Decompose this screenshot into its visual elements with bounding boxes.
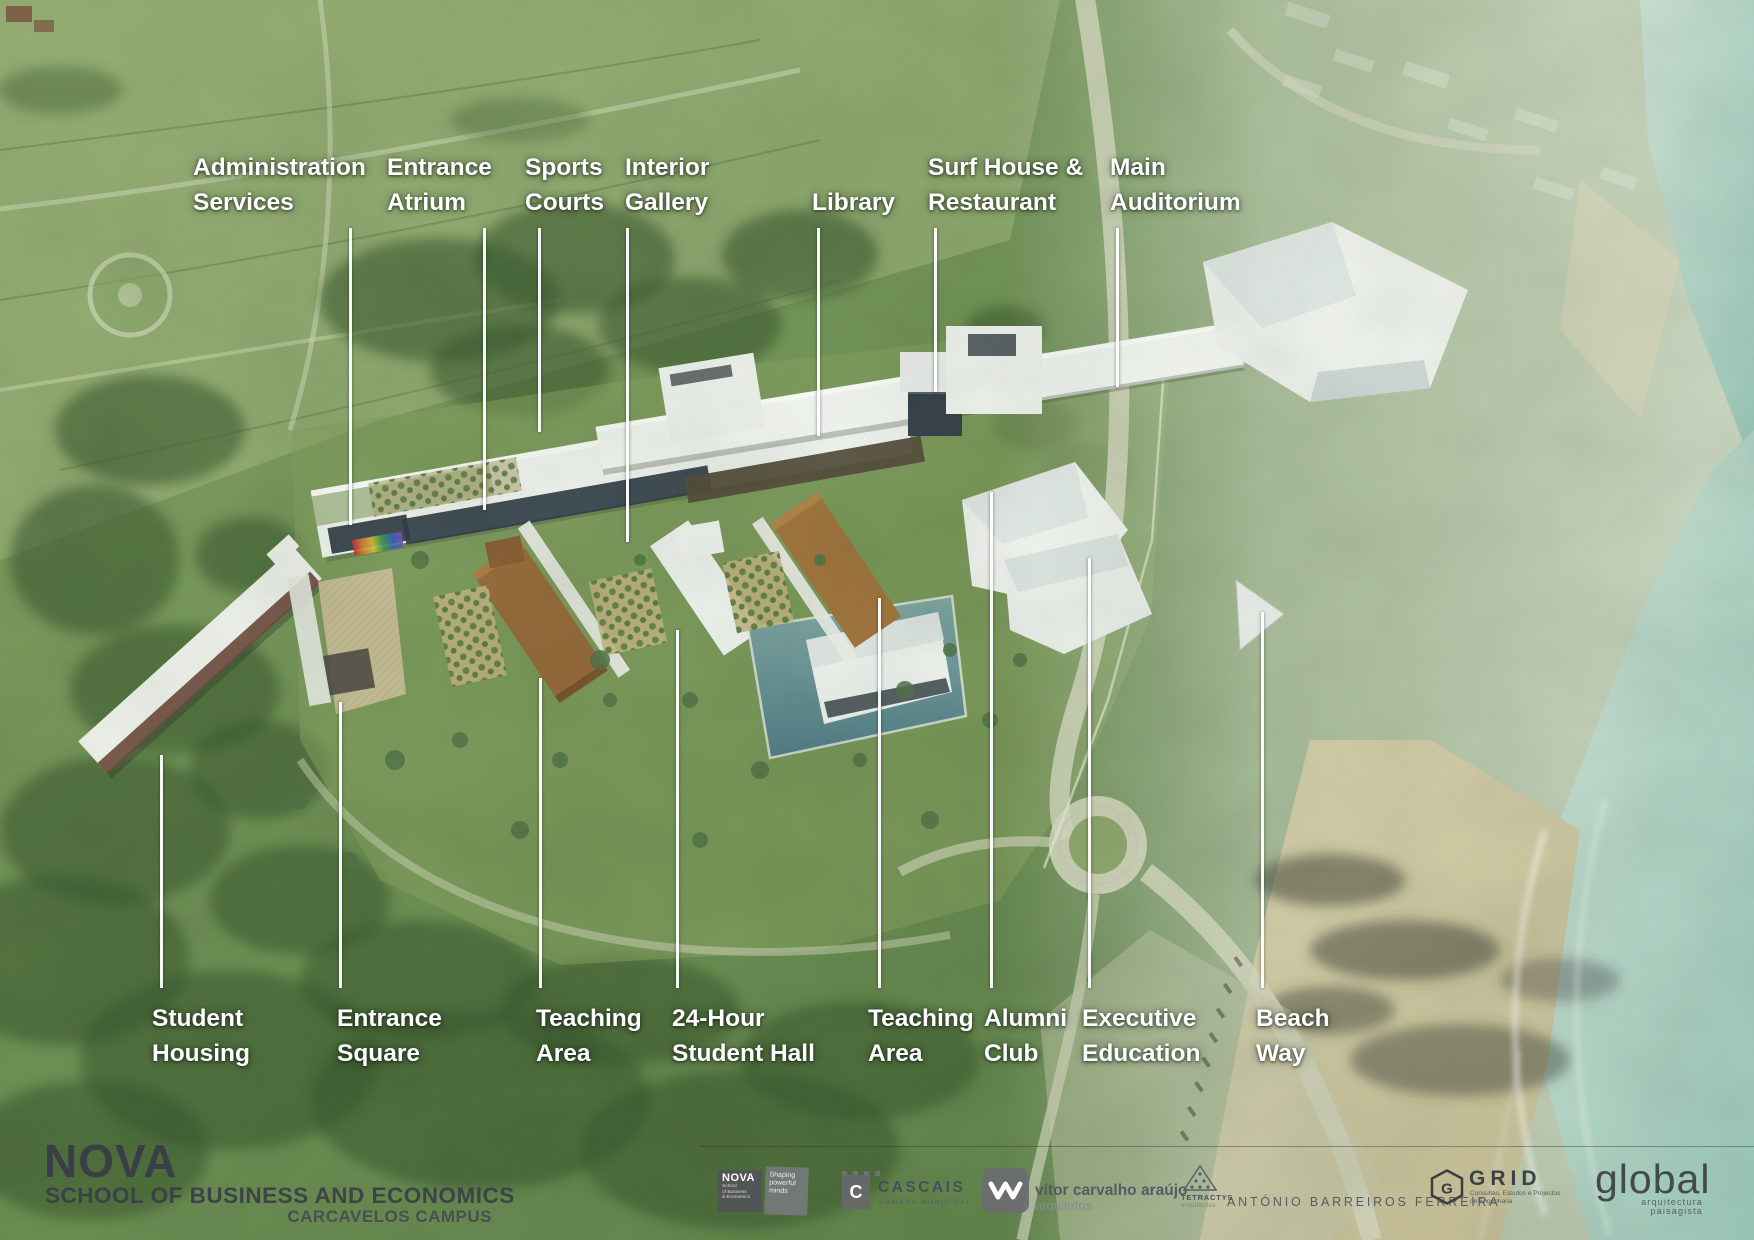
callout-student-hall: 24-Hour Student Hall — [672, 1001, 815, 1071]
leader-line-interior-gallery — [626, 228, 629, 542]
leader-line-main-auditorium — [1116, 228, 1119, 387]
global-logo-name: global — [1595, 1159, 1710, 1200]
leader-line-sports-courts — [538, 228, 541, 432]
callout-label-line: Interior — [625, 150, 709, 185]
callout-label-line: Way — [1256, 1036, 1330, 1071]
callout-teaching-area-east: Teaching Area — [868, 1001, 974, 1071]
grid-logo-sub: Consultas, Estudos e Projectos de Engenh… — [1470, 1190, 1560, 1205]
callout-library: Library — [812, 185, 895, 220]
grid-logo-name: GRID — [1469, 1168, 1542, 1189]
callout-label-line: Alumni — [984, 1001, 1067, 1036]
callout-label-line: Auditorium — [1110, 185, 1241, 220]
leader-line-executive-education — [1088, 558, 1091, 988]
tetractys-logo-sub: arquitectos — [1181, 1203, 1216, 1209]
callout-label-line: Executive — [1082, 1001, 1200, 1036]
callout-label-line: Teaching — [536, 1001, 642, 1036]
callout-label-line: Gallery — [625, 185, 709, 220]
leader-line-student-hall — [676, 630, 679, 988]
leader-line-entrance-square — [339, 702, 342, 988]
global-logo-sub: arquitectura paisagista — [1597, 1198, 1703, 1216]
callout-label-line: Main — [1110, 150, 1241, 185]
callout-label-line: Teaching — [868, 1001, 974, 1036]
callout-label-line: Sports — [525, 150, 604, 185]
leader-line-surf-house-restaurant — [934, 228, 937, 392]
grid-hexagon-icon: G — [1427, 1167, 1467, 1212]
shaping-minds-line: minds — [769, 1187, 804, 1196]
callout-label-line: Housing — [152, 1036, 250, 1071]
vca-wave-icon — [982, 1168, 1029, 1213]
callout-label-line: Surf House & — [928, 150, 1083, 185]
tetractys-logo-name: TETRACTYS — [1181, 1194, 1233, 1202]
cascais-logo-sub: CÂMARA MUNICIPAL — [879, 1200, 972, 1207]
callout-teaching-area-west: Teaching Area — [536, 1001, 642, 1071]
leader-line-administration-services — [349, 228, 352, 525]
nova-sbe-logo-sub: & Economics — [722, 1195, 758, 1201]
callout-interior-gallery: Interior Gallery — [625, 150, 709, 220]
leader-line-library — [817, 228, 820, 436]
callout-alumni-club: Alumni Club — [984, 1001, 1067, 1071]
nova-sbe-logo-name: NOVA — [722, 1173, 758, 1184]
callout-label-line: Entrance — [387, 150, 492, 185]
shaping-minds-logo: Shaping powerful minds — [764, 1166, 809, 1215]
cascais-c-icon: C — [842, 1175, 870, 1209]
callout-label-line: Club — [984, 1036, 1067, 1071]
callout-label-line: Education — [1082, 1036, 1200, 1071]
grid-logo-sub-line: de Engenharia — [1470, 1198, 1560, 1206]
leader-line-teaching-area-east — [878, 598, 881, 988]
grid-logo-sub-line: Consultas, Estudos e Projectos — [1470, 1190, 1560, 1198]
leader-line-teaching-area-west — [539, 678, 542, 988]
callout-student-housing: Student Housing — [152, 1001, 250, 1071]
brand-school-line: SCHOOL OF BUSINESS AND ECONOMICS — [45, 1185, 515, 1208]
callout-administration-services: Administration Services — [193, 150, 366, 220]
callout-label-line: Entrance — [337, 1001, 442, 1036]
brand-campus-line: CARCAVELOS CAMPUS — [46, 1208, 492, 1225]
callout-label-line: Services — [193, 185, 366, 220]
vca-logo-name: vítor carvalho araújo — [1035, 1183, 1187, 1199]
vca-logo-sub: arquitetos — [1035, 1199, 1092, 1212]
svg-text:G: G — [1441, 1181, 1453, 1198]
callout-label-line: Area — [868, 1036, 974, 1071]
callout-entrance-square: Entrance Square — [337, 1001, 442, 1071]
callout-label-line: Restaurant — [928, 185, 1083, 220]
callout-label-line: Student Hall — [672, 1036, 815, 1071]
leader-line-entrance-atrium — [483, 228, 486, 510]
callout-label-line: Library — [812, 185, 895, 220]
callout-main-auditorium: Main Auditorium — [1110, 150, 1241, 220]
brand-nova: NOVA — [44, 1138, 178, 1184]
callout-surf-house-restaurant: Surf House & Restaurant — [928, 150, 1083, 220]
callout-label-line: Square — [337, 1036, 442, 1071]
vca-logo-box — [982, 1168, 1029, 1213]
callout-entrance-atrium: Entrance Atrium — [387, 150, 492, 220]
callout-label-line: Area — [536, 1036, 642, 1071]
cascais-logo-name: CASCAIS — [878, 1180, 965, 1196]
footer-divider-line — [700, 1146, 1754, 1147]
leader-line-alumni-club — [990, 492, 993, 988]
callout-label-line: Courts — [525, 185, 604, 220]
callout-label-line: Administration — [193, 150, 366, 185]
nova-sbe-logo: NOVA School of Business & Economics — [718, 1170, 762, 1212]
callout-sports-courts: Sports Courts — [525, 150, 604, 220]
nova-sbe-campus-rendering: Administration Services Entrance Atrium … — [0, 0, 1754, 1240]
callout-label-line: Student — [152, 1001, 250, 1036]
leader-line-student-housing — [160, 755, 163, 988]
callout-label-line: Beach — [1256, 1001, 1330, 1036]
callout-beach-way: Beach Way — [1256, 1001, 1330, 1071]
callout-label-line: 24-Hour — [672, 1001, 815, 1036]
callout-label-line: Atrium — [387, 185, 492, 220]
leader-line-beach-way — [1261, 612, 1264, 988]
callout-executive-education: Executive Education — [1082, 1001, 1200, 1071]
